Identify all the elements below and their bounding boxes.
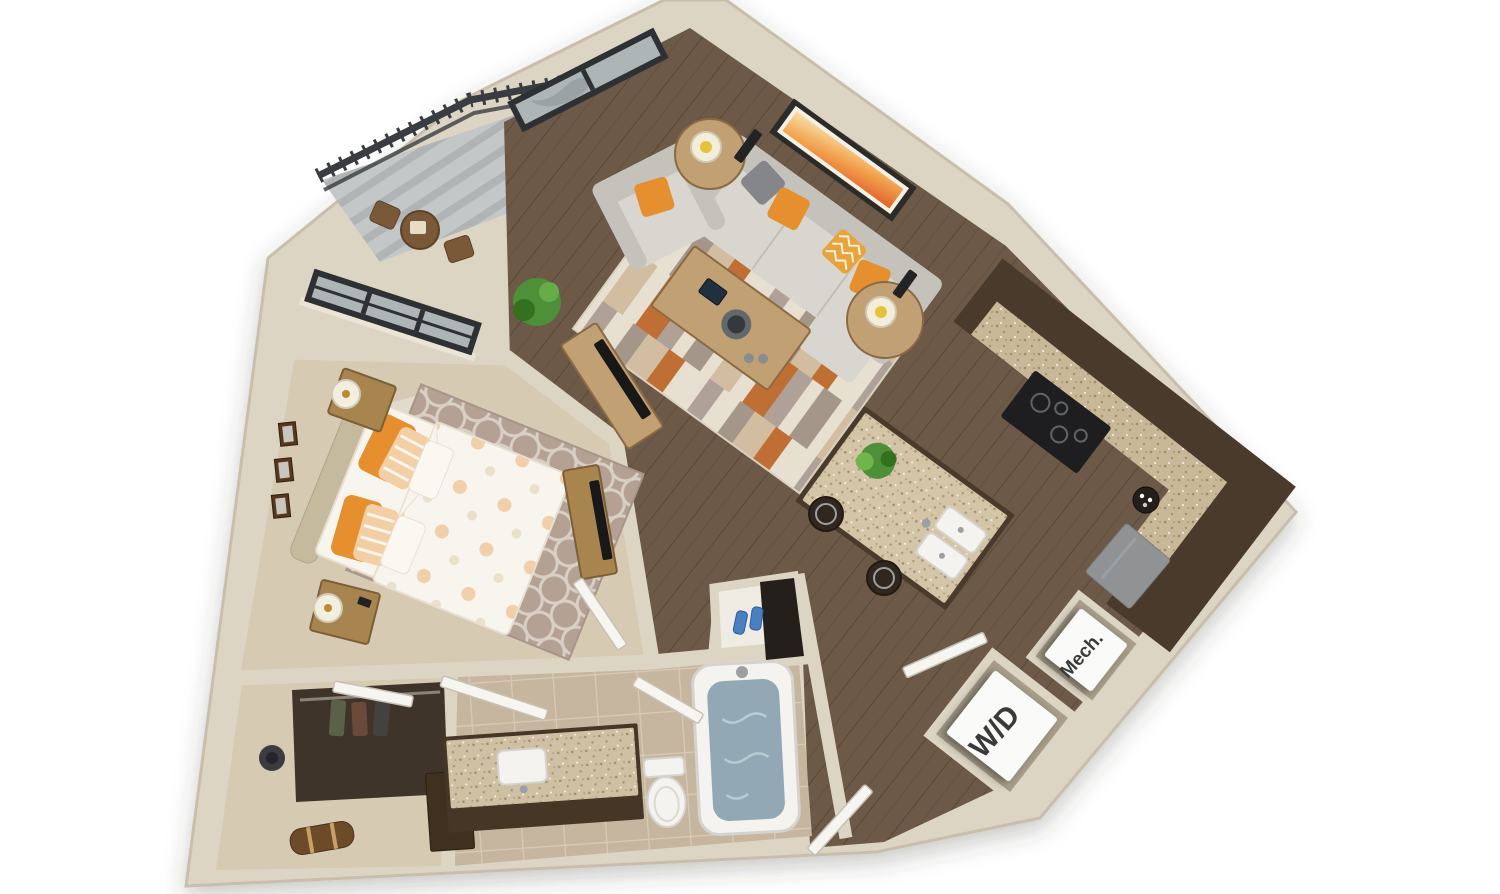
bar-stool bbox=[809, 497, 843, 531]
lamp-base bbox=[324, 604, 332, 612]
picture-frame bbox=[274, 458, 293, 483]
floor-plan-canvas: W/D Mech. bbox=[0, 0, 1500, 894]
lamp-base bbox=[342, 390, 350, 398]
picture-frame bbox=[271, 494, 290, 519]
bar-stool bbox=[867, 561, 901, 595]
picture-frame bbox=[278, 422, 297, 447]
patio-table bbox=[401, 211, 439, 249]
hat bbox=[259, 745, 285, 771]
hanging-clothes bbox=[351, 702, 368, 737]
potted-plant bbox=[513, 278, 561, 326]
bathtub-water bbox=[706, 678, 785, 822]
floor-plan-3d-render: W/D Mech. bbox=[0, 0, 1500, 894]
bathroom-vanity bbox=[442, 723, 644, 832]
bathtub bbox=[692, 660, 801, 835]
side-table bbox=[847, 282, 923, 358]
side-table bbox=[675, 119, 745, 189]
hanging-clothes bbox=[372, 699, 390, 736]
fruit-bowl bbox=[1133, 487, 1159, 513]
vanity-sink bbox=[497, 748, 547, 785]
hanging-clothes bbox=[329, 700, 346, 737]
